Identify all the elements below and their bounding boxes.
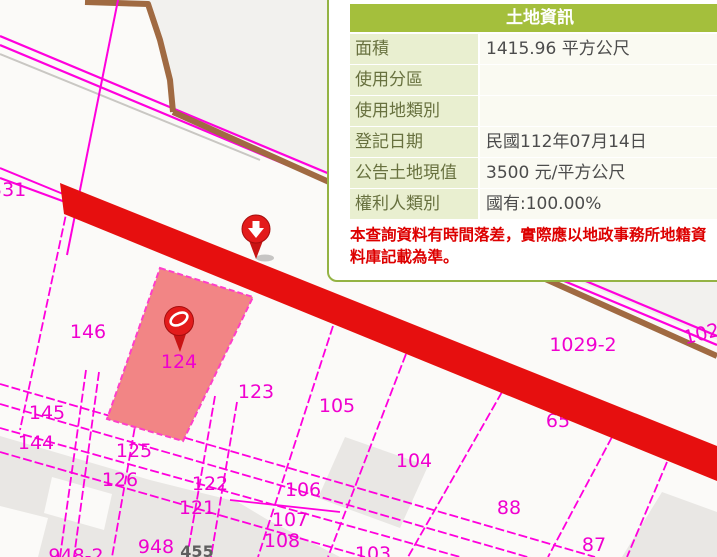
panel-title: 土地資訊: [350, 4, 717, 32]
info-row-land-use-type: 使用地類別: [350, 96, 717, 126]
parcel-label: 103: [355, 543, 391, 557]
row-label: 登記日期: [350, 127, 478, 157]
parcel-label: 948-2: [48, 545, 103, 557]
parcel-label: 108: [264, 530, 300, 552]
row-value: 3500 元/平方公尺: [480, 158, 717, 188]
building-number-label: 455: [180, 542, 213, 557]
parcel-label: 948: [138, 536, 174, 557]
parcel-label: 1029-2: [549, 334, 616, 356]
parcel-label: 124: [161, 351, 197, 373]
row-label: 面積: [350, 34, 478, 64]
info-row-area: 面積 1415.96 平方公尺: [350, 34, 717, 64]
data-lag-warning: 本查詢資料有時間落差，實際應以地政事務所地籍資料庫記載為準。: [350, 224, 714, 268]
parcel-label: 87: [582, 534, 606, 556]
marker-balloon: [165, 307, 194, 336]
parcel-label: 106: [285, 479, 321, 501]
parcel-label: 122: [192, 473, 228, 495]
info-row-rights-holder: 權利人類別 國有:100.00%: [350, 189, 717, 219]
marker-shadow: [256, 255, 274, 262]
parcel-label: 123: [238, 381, 274, 403]
row-label: 使用地類別: [350, 96, 478, 126]
parcel-label: 121: [179, 497, 215, 519]
info-row-registration-date: 登記日期 民國112年07月14日: [350, 127, 717, 157]
parcel-label: 105: [319, 395, 355, 417]
land-info-panel: 土地資訊 面積 1415.96 平方公尺 使用分區 使用地類別 登記日期 民國1…: [327, 0, 717, 282]
parcel-label: 145: [29, 402, 65, 424]
parcel-label: 125: [116, 440, 152, 462]
parcel-label: 104: [396, 450, 432, 472]
row-value: [480, 96, 717, 126]
row-label: 使用分區: [350, 65, 478, 95]
row-value: 國有:100.00%: [480, 189, 717, 219]
parcel-label: 146: [70, 321, 106, 343]
row-label: 公告土地現值: [350, 158, 478, 188]
row-label: 權利人類別: [350, 189, 478, 219]
info-row-announced-value: 公告土地現值 3500 元/平方公尺: [350, 158, 717, 188]
parcel-label: 88: [497, 497, 521, 519]
row-value: [480, 65, 717, 95]
parcel-label: 107: [272, 509, 308, 531]
row-value: 1415.96 平方公尺: [480, 34, 717, 64]
parcel-label: 531: [0, 179, 26, 201]
parcel-label: 144: [18, 432, 54, 454]
row-value: 民國112年07月14日: [480, 127, 717, 157]
parcel-label: 126: [102, 469, 138, 491]
info-row-zoning: 使用分區: [350, 65, 717, 95]
